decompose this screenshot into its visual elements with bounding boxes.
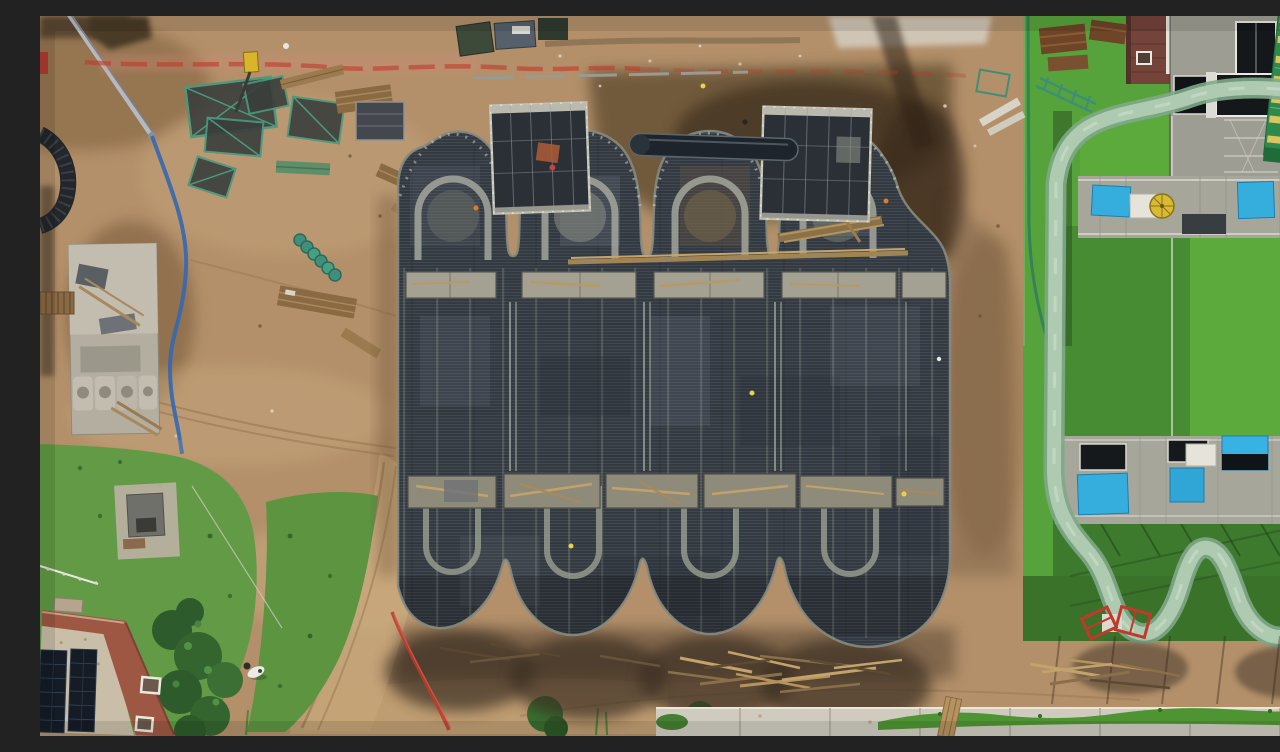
pool-panel [1091, 185, 1131, 217]
scaffold-tower-east [761, 107, 872, 222]
formwork-box-row-lower [408, 474, 944, 508]
formwork-box-row-upper [406, 272, 946, 298]
pool-panel [1077, 473, 1128, 515]
scaffold-frame [205, 118, 264, 157]
storage-pad [68, 243, 161, 437]
formwork-slab [395, 84, 955, 647]
formwork-panel-stack [356, 102, 404, 140]
pool-panel [1170, 468, 1204, 502]
scene-svg [40, 16, 1280, 736]
white-box [1186, 444, 1216, 466]
pool-terrace-upper [1078, 176, 1280, 238]
umbrella [1150, 194, 1174, 218]
pool-panel [1237, 181, 1274, 218]
opening [1182, 214, 1226, 234]
aerial-photo [40, 16, 1280, 736]
scaffold-tower-west [490, 102, 590, 213]
pool-terrace-lower [1055, 436, 1280, 524]
scaffold-frame [287, 97, 344, 144]
shed [114, 482, 180, 559]
opening [1080, 444, 1126, 470]
